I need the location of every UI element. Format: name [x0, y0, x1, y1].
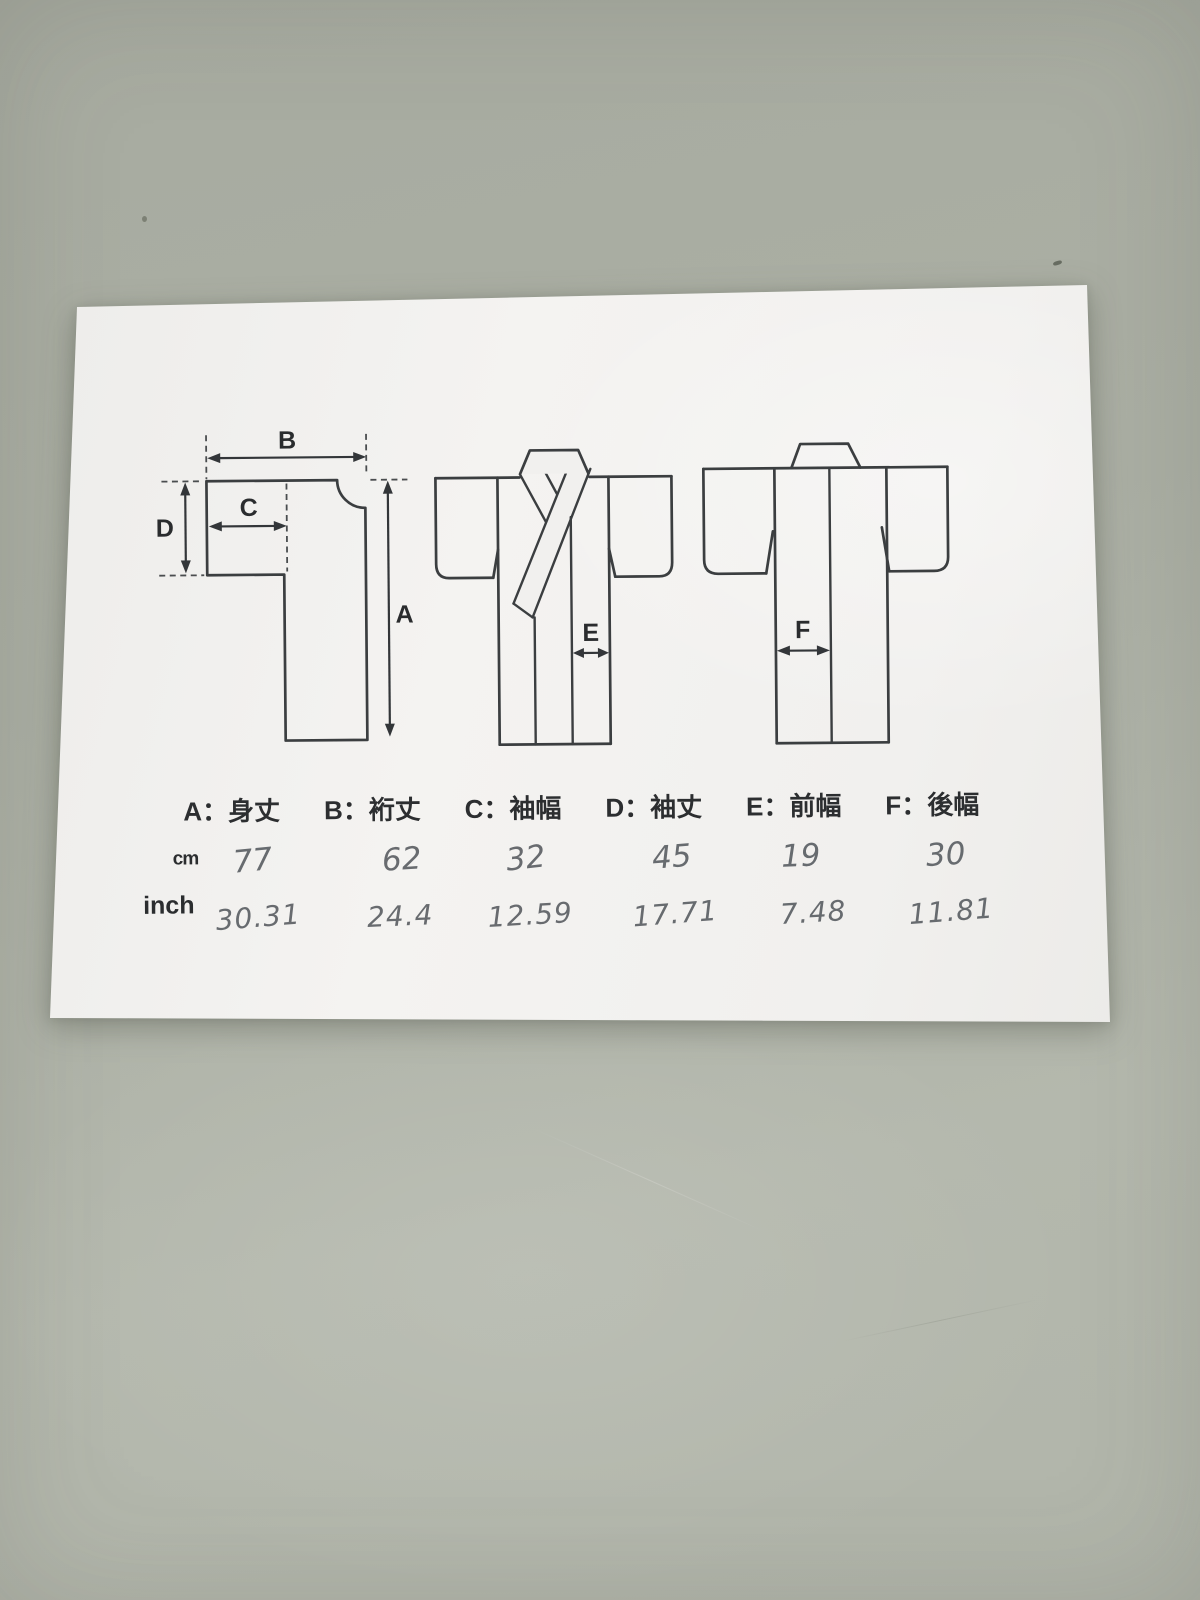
dim-arrow-b: B	[207, 426, 366, 463]
inch-value-a: 30.31	[214, 898, 301, 938]
inch-value-e: 7.48	[779, 894, 847, 931]
flat-piece-diagram: B D C	[155, 425, 415, 741]
legend-item-e: E：前幅	[746, 786, 842, 824]
cm-value-b: 62	[381, 840, 423, 878]
legend-item-f: F：後幅	[885, 785, 979, 823]
front-left-sleeve	[435, 478, 493, 578]
legend-item-c: C：袖幅	[465, 788, 562, 826]
back-body-left-edge	[774, 468, 776, 743]
dim-label-f: F	[795, 616, 811, 644]
legend-item-b: B：裄丈	[324, 789, 421, 827]
dim-arrow-a: A	[383, 480, 415, 736]
measurement-legend: A：身丈 B：裄丈 C：袖幅 D：袖丈 E：前幅 F：後幅	[183, 785, 979, 829]
front-body-left-edge	[497, 478, 499, 745]
front-right-sleeve	[614, 476, 672, 576]
back-body-right-edge	[886, 467, 888, 742]
dim-label-d: D	[156, 515, 174, 543]
printed-content: B D C	[0, 0, 1200, 1600]
inch-value-f: 11.81	[907, 891, 994, 931]
back-collar	[520, 450, 589, 474]
back-left-sleeve	[703, 468, 766, 574]
legend-item-a: A：身丈	[183, 791, 280, 829]
dim-arrow-e: E	[573, 619, 609, 658]
cm-value-e: 19	[780, 837, 821, 875]
cm-value-f: 30	[925, 836, 967, 874]
cm-row-label: cm	[173, 848, 199, 870]
front-body-right-edge	[608, 477, 610, 744]
kimono-front-outline	[435, 478, 519, 479]
kimono-front-diagram: E	[435, 449, 674, 745]
back-center-seam	[829, 468, 831, 743]
front-okumi-seam	[535, 617, 536, 744]
back-left-underarm	[766, 531, 773, 573]
cm-value-c: 32	[504, 838, 547, 878]
dim-arrow-c: C	[209, 494, 287, 532]
cm-value-d: 45	[651, 838, 693, 877]
cm-value-a: 77	[231, 841, 274, 881]
inch-value-c: 12.59	[487, 896, 574, 934]
kimono-front-outline	[589, 476, 671, 477]
inch-value-b: 24.4	[366, 898, 434, 934]
inch-row-label: inch	[143, 891, 195, 920]
dim-arrow-d: D	[155, 482, 191, 573]
back-shoulder-edge	[703, 467, 947, 469]
inch-value-d: 17.71	[631, 894, 718, 934]
dim-label-b: B	[278, 426, 296, 454]
collar-over-band	[512, 455, 591, 618]
kimono-back-diagram: F	[703, 443, 950, 744]
back-collar-outline	[791, 444, 860, 469]
dim-label-c: C	[240, 494, 258, 522]
dim-label-e: E	[582, 619, 599, 647]
legend-item-d: D：袖丈	[605, 787, 702, 825]
photo-scene: B D C	[0, 0, 1200, 1600]
front-edge-seam	[571, 517, 573, 744]
dim-arrow-f: F	[777, 616, 830, 656]
dim-label-a: A	[395, 600, 413, 628]
back-right-sleeve	[888, 467, 948, 572]
front-hem	[500, 744, 611, 745]
dashed-guide	[286, 484, 287, 572]
